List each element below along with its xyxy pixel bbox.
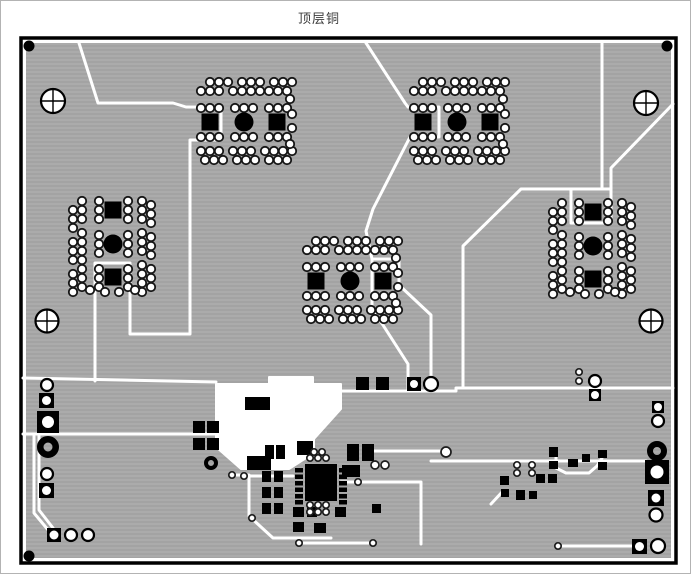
pth-pad-square xyxy=(648,490,664,506)
via-pad xyxy=(321,306,329,314)
via-pad xyxy=(274,133,282,141)
via xyxy=(229,472,235,478)
via-pad xyxy=(419,78,427,86)
via-pad xyxy=(69,238,77,246)
via-pad xyxy=(428,87,436,95)
via-pad xyxy=(483,78,491,86)
via-pad xyxy=(414,156,422,164)
via-pad xyxy=(410,133,418,141)
via-pad xyxy=(604,276,612,284)
via-pad xyxy=(394,283,402,291)
via-pad xyxy=(478,87,486,95)
smd-pad xyxy=(529,491,537,499)
via-pad xyxy=(274,87,282,95)
via-pad xyxy=(549,258,557,266)
via-pad xyxy=(581,290,589,298)
via xyxy=(315,502,321,508)
via xyxy=(529,470,535,476)
via-pad xyxy=(307,315,315,323)
via xyxy=(241,473,247,479)
via-pad xyxy=(444,104,452,112)
via-pad xyxy=(131,286,139,294)
via-pad xyxy=(575,208,583,216)
via-pad xyxy=(371,246,379,254)
smd-pad xyxy=(536,474,545,483)
smd-pad xyxy=(293,507,304,517)
pth-pad-round xyxy=(424,377,438,391)
smd-pad xyxy=(207,421,219,433)
via-pad xyxy=(362,246,370,254)
via-pad xyxy=(78,274,86,282)
via xyxy=(370,540,376,546)
via-pad xyxy=(442,87,450,95)
via-pad xyxy=(261,147,269,155)
via-pad xyxy=(288,78,296,86)
via-pad xyxy=(371,315,379,323)
smd-pad xyxy=(356,377,369,390)
via-pad xyxy=(231,104,239,112)
pth-pad-square xyxy=(39,393,54,408)
via-pad xyxy=(618,281,626,289)
pth-pad-round xyxy=(41,468,53,480)
via-pad xyxy=(385,306,393,314)
via-pad xyxy=(549,217,557,225)
via-pad xyxy=(197,133,205,141)
via-pad xyxy=(344,306,352,314)
ic-pin xyxy=(295,488,303,493)
via-pad xyxy=(147,201,155,209)
via-pad xyxy=(501,78,509,86)
via-pad xyxy=(86,286,94,294)
smd-pad xyxy=(262,487,271,498)
via-pad xyxy=(247,78,255,86)
via-pad xyxy=(380,292,388,300)
via-pad xyxy=(312,237,320,245)
via-pad xyxy=(595,290,603,298)
pth-pad-round xyxy=(651,539,665,553)
via-pad xyxy=(249,133,257,141)
via-pad xyxy=(231,133,239,141)
via-pad xyxy=(566,288,574,296)
smd-pad-round xyxy=(341,272,360,291)
mounting-hole xyxy=(634,91,658,115)
pth-pad-square xyxy=(589,389,601,401)
via-pad xyxy=(138,197,146,205)
via-pad xyxy=(549,290,557,298)
via-pad xyxy=(575,233,583,241)
via-pad xyxy=(419,87,427,95)
via-pad xyxy=(197,87,205,95)
via-pad xyxy=(147,274,155,282)
via-pad xyxy=(385,237,393,245)
ic-pin xyxy=(339,475,347,480)
pth-pad-round xyxy=(650,509,663,522)
via xyxy=(311,449,317,455)
pth-pad-round xyxy=(65,529,77,541)
via-pad xyxy=(487,87,495,95)
via xyxy=(249,515,255,521)
via-pad xyxy=(549,272,557,280)
smd-pad xyxy=(549,461,558,469)
via-pad xyxy=(627,267,635,275)
via-pad xyxy=(321,237,329,245)
via-pad xyxy=(303,292,311,300)
via-pad xyxy=(312,246,320,254)
smd-pad xyxy=(598,462,607,470)
via-pad xyxy=(549,208,557,216)
pth-pad-round xyxy=(652,415,664,427)
via-pad xyxy=(575,242,583,250)
via-pad xyxy=(371,263,379,271)
smd-pad-square xyxy=(269,114,286,131)
via-pad xyxy=(288,110,296,118)
via-pad xyxy=(335,246,343,254)
via-pad xyxy=(627,253,635,261)
pcb-canvas xyxy=(1,1,691,574)
pth-pad-square xyxy=(407,377,421,391)
via-pad xyxy=(460,87,468,95)
via-pad xyxy=(138,261,146,269)
via-pad xyxy=(312,263,320,271)
via-pad xyxy=(558,267,566,275)
via-pad xyxy=(451,78,459,86)
via-pad xyxy=(147,265,155,273)
via-pad xyxy=(138,238,146,246)
via-pad xyxy=(288,124,296,132)
smd-pad xyxy=(347,444,359,461)
via-pad xyxy=(444,133,452,141)
smd-pad xyxy=(501,489,509,497)
via-pad xyxy=(348,315,356,323)
via-pad xyxy=(337,292,345,300)
ic-pin xyxy=(295,475,303,480)
via-pad xyxy=(501,124,509,132)
via-pad xyxy=(627,244,635,252)
smd-pad xyxy=(598,450,607,458)
via-pad xyxy=(487,133,495,141)
ic-pin xyxy=(295,481,303,486)
via-pad xyxy=(249,104,257,112)
via-pad xyxy=(558,217,566,225)
pth-pad-square xyxy=(37,411,59,433)
smd-pad-square xyxy=(585,271,602,288)
via-pad xyxy=(558,276,566,284)
smd-pad xyxy=(372,504,381,513)
via-pad xyxy=(380,246,388,254)
via-pad xyxy=(325,315,333,323)
via-pad xyxy=(206,87,214,95)
via-pad xyxy=(147,283,155,291)
via-pad xyxy=(357,315,365,323)
smd-pad-square xyxy=(105,269,122,286)
via-pad xyxy=(147,251,155,259)
via-pad xyxy=(206,104,214,112)
via-pad xyxy=(124,274,132,282)
via-pad xyxy=(274,104,282,112)
via-pad xyxy=(78,197,86,205)
via-pad xyxy=(115,288,123,296)
ic-pin xyxy=(339,481,347,486)
via xyxy=(315,509,321,515)
ic-pin xyxy=(339,468,347,473)
via-pad xyxy=(69,256,77,264)
via-pad xyxy=(95,197,103,205)
via-pad xyxy=(428,133,436,141)
via-pad xyxy=(206,147,214,155)
via-pad xyxy=(124,231,132,239)
via-pad xyxy=(201,156,209,164)
via-pad xyxy=(215,87,223,95)
via xyxy=(514,462,520,468)
via-pad xyxy=(380,315,388,323)
via xyxy=(576,378,582,384)
smd-pad xyxy=(274,471,283,482)
via-pad xyxy=(240,133,248,141)
pcb-canvas-holder xyxy=(1,1,691,574)
via-pad xyxy=(95,249,103,257)
via-pad xyxy=(312,292,320,300)
pth-pad-square xyxy=(645,460,669,484)
via-pad xyxy=(558,249,566,257)
via-pad xyxy=(618,249,626,257)
via-pad xyxy=(462,104,470,112)
via-pad xyxy=(321,263,329,271)
via-pad xyxy=(206,78,214,86)
via-pad xyxy=(233,156,241,164)
via-pad xyxy=(229,87,237,95)
smd-pad xyxy=(548,474,557,483)
via-pad xyxy=(138,229,146,237)
smd-pad-square xyxy=(415,114,432,131)
via xyxy=(355,479,361,485)
smd-pad xyxy=(549,447,558,457)
via-pad xyxy=(316,315,324,323)
via-pad xyxy=(215,78,223,86)
via-pad xyxy=(618,208,626,216)
via-pad xyxy=(147,233,155,241)
fiducial-dot xyxy=(24,41,35,52)
via-pad xyxy=(604,242,612,250)
via-pad xyxy=(410,147,418,155)
via-pad xyxy=(492,147,500,155)
via-pad xyxy=(460,147,468,155)
via-pad xyxy=(95,231,103,239)
ic-cluster xyxy=(303,237,402,323)
via-pad xyxy=(371,292,379,300)
pth-pad-square xyxy=(39,483,54,498)
via xyxy=(323,509,329,515)
via-pad xyxy=(265,156,273,164)
via-pad xyxy=(575,276,583,284)
via-pad xyxy=(376,306,384,314)
via xyxy=(307,509,313,515)
via-pad xyxy=(380,263,388,271)
via-pad xyxy=(224,78,232,86)
via-pad xyxy=(558,258,566,266)
via-pad xyxy=(303,306,311,314)
smd-pad-round xyxy=(448,113,467,132)
via-pad xyxy=(337,263,345,271)
via-pad xyxy=(256,78,264,86)
via-pad xyxy=(265,104,273,112)
via-pad xyxy=(78,206,86,214)
smd-pad xyxy=(207,438,219,450)
via-pad xyxy=(78,238,86,246)
via-pad xyxy=(419,147,427,155)
via-pad xyxy=(238,78,246,86)
via-pad xyxy=(394,269,402,277)
via-pad xyxy=(69,270,77,278)
via-pad xyxy=(618,217,626,225)
pth-pad-round xyxy=(41,379,53,391)
via-pad xyxy=(353,306,361,314)
via-pad xyxy=(95,274,103,282)
via-pad xyxy=(303,246,311,254)
smd-pad xyxy=(335,507,346,517)
via-pad xyxy=(344,246,352,254)
via-pad xyxy=(478,156,486,164)
via-pad xyxy=(451,87,459,95)
via-pad xyxy=(618,199,626,207)
via-pad xyxy=(330,237,338,245)
smd-pad-square xyxy=(202,114,219,131)
via-pad xyxy=(604,208,612,216)
via-pad xyxy=(575,199,583,207)
via xyxy=(529,462,535,468)
via-pad xyxy=(627,235,635,243)
via-pad xyxy=(78,247,86,255)
via-pad xyxy=(455,156,463,164)
via-pad xyxy=(549,240,557,248)
via-pad xyxy=(219,156,227,164)
via-pad xyxy=(335,306,343,314)
via-pad xyxy=(478,133,486,141)
via-pad xyxy=(453,104,461,112)
via-pad xyxy=(124,215,132,223)
via-pad xyxy=(215,147,223,155)
via-pad xyxy=(69,288,77,296)
ic-footprint xyxy=(295,464,347,505)
via-pad xyxy=(575,217,583,225)
ic-pin xyxy=(339,494,347,499)
via-pad xyxy=(346,263,354,271)
via-pad xyxy=(265,133,273,141)
via-pad xyxy=(469,78,477,86)
via-pad xyxy=(451,147,459,155)
via-pad xyxy=(487,156,495,164)
smd-pad-round xyxy=(235,113,254,132)
via-pad xyxy=(428,104,436,112)
via xyxy=(514,470,520,476)
via-pad xyxy=(410,87,418,95)
smd-pad-square xyxy=(375,273,392,290)
via-pad xyxy=(549,226,557,234)
via-pad xyxy=(95,265,103,273)
via-pad xyxy=(240,104,248,112)
via-pad xyxy=(376,237,384,245)
via-pad xyxy=(138,270,146,278)
via-pad xyxy=(442,147,450,155)
smd-pad-square xyxy=(585,204,602,221)
smd-pad xyxy=(376,377,389,390)
smd-pad xyxy=(500,476,509,485)
via-pad xyxy=(321,246,329,254)
via-pad xyxy=(238,147,246,155)
via-pad xyxy=(256,87,264,95)
smd-pad xyxy=(293,522,304,532)
via-pad xyxy=(487,104,495,112)
via-pad xyxy=(215,133,223,141)
pth-pad-square xyxy=(652,401,664,413)
smd-pad xyxy=(193,438,205,450)
via-pad xyxy=(124,265,132,273)
via-pad xyxy=(303,263,311,271)
via-pad xyxy=(499,140,507,148)
via-pad xyxy=(210,156,218,164)
ic-body xyxy=(305,464,337,501)
via-pad xyxy=(627,221,635,229)
via-pad xyxy=(627,276,635,284)
via-pad xyxy=(78,265,86,273)
smd-pad-square xyxy=(308,273,325,290)
via-pad xyxy=(492,78,500,86)
via-pad xyxy=(247,87,255,95)
via-pad xyxy=(604,233,612,241)
via-pad xyxy=(496,156,504,164)
via-pad xyxy=(286,140,294,148)
via xyxy=(315,455,321,461)
via-pad xyxy=(392,299,400,307)
smd-pad xyxy=(274,503,283,514)
via-pad xyxy=(410,104,418,112)
via xyxy=(576,369,582,375)
ic-cluster xyxy=(410,78,509,164)
via-pad xyxy=(604,199,612,207)
via-pad xyxy=(215,104,223,112)
via-pad xyxy=(389,315,397,323)
fiducial-dot xyxy=(24,551,35,562)
via-pad xyxy=(69,224,77,232)
via-pad xyxy=(627,285,635,293)
smd-pad xyxy=(265,445,274,459)
smd-pad xyxy=(262,503,271,514)
mounting-hole xyxy=(36,310,59,333)
via-pad xyxy=(279,147,287,155)
mounting-hole xyxy=(41,89,65,113)
via-pad xyxy=(575,267,583,275)
ic-pin xyxy=(295,494,303,499)
via-pad xyxy=(270,78,278,86)
via-pad xyxy=(346,292,354,300)
via-pad xyxy=(78,256,86,264)
via-pad xyxy=(321,292,329,300)
via-pad xyxy=(69,206,77,214)
via-pad xyxy=(138,206,146,214)
via-pad xyxy=(627,203,635,211)
mounting-hole xyxy=(640,310,663,333)
via-pad xyxy=(432,156,440,164)
via-pad xyxy=(604,251,612,259)
via-pad xyxy=(124,240,132,248)
via-pad xyxy=(627,212,635,220)
via-pad xyxy=(437,78,445,86)
via-pad xyxy=(78,229,86,237)
via-pad xyxy=(474,147,482,155)
via-pad xyxy=(501,110,509,118)
via-pad xyxy=(238,87,246,95)
via xyxy=(307,455,313,461)
via-pad xyxy=(558,231,566,239)
